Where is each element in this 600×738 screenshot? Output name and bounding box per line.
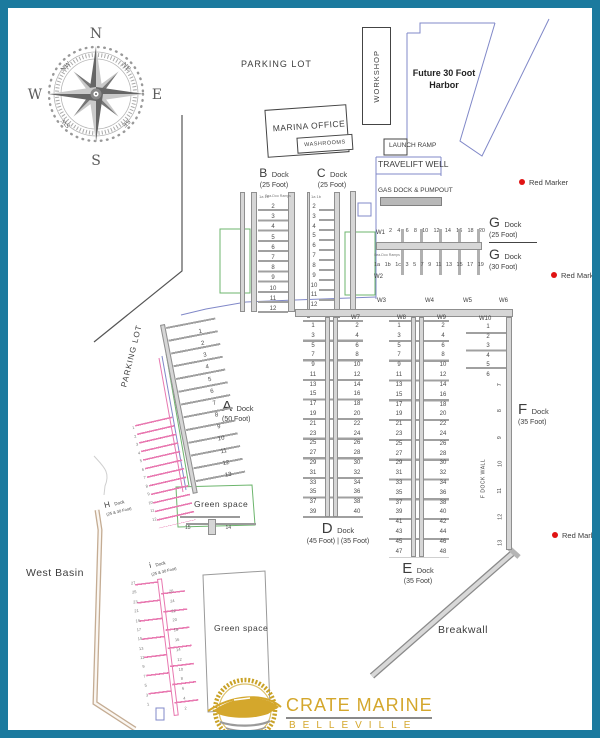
- a-dock-end-stub: [208, 519, 216, 535]
- west-wall: [95, 510, 135, 729]
- f-dock-slips-top: 123456: [480, 324, 496, 378]
- walkway-w10-label: W10: [479, 316, 491, 322]
- c-dock-outer-rail: [350, 191, 356, 313]
- compass-w: W: [28, 87, 43, 103]
- workshop-label: WORKSHOP: [372, 50, 381, 103]
- g-dock-divider: [489, 242, 537, 243]
- launch-ramp-label: LAUNCH RAMP: [389, 143, 436, 150]
- marina-map: N E S W NE SE SW NW PARKING LOT WORKSHOP…: [0, 0, 600, 738]
- green-space-2-outline: [203, 571, 270, 712]
- g-dock-letter-25: G: [489, 214, 500, 230]
- logo-divider: [286, 717, 432, 719]
- f-dock-header: F Dock (35 Foot): [518, 401, 562, 427]
- west-basin-label: West Basin: [26, 568, 84, 579]
- g-dock-rail: [376, 242, 482, 250]
- workshop-building: WORKSHOP: [362, 27, 391, 125]
- e-dock-size: (35 Foot): [390, 578, 446, 586]
- g-dock-south-slips: 1a1b1c35791113151719: [374, 263, 484, 269]
- c-dock-ramp-slips: 1a 1b: [311, 195, 321, 199]
- gas-dock-label: GAS DOCK & PUMPOUT: [378, 188, 453, 195]
- breakwall-label: Breakwall: [438, 625, 488, 636]
- e-dock-slips-left: 1357911131517192123252729313335373941434…: [390, 323, 408, 555]
- logo-subtitle: BELLEVILLE: [289, 720, 417, 731]
- c-dock-slip-numbers: 2345678910111213: [308, 204, 320, 318]
- g-dock-size-25: (25 Foot): [489, 232, 537, 240]
- f-dock-letter: F: [518, 401, 527, 418]
- walkway-w5-label: W5: [463, 298, 472, 304]
- sea-doo-ramps-label-g: Sea-Doo Ramps: [374, 254, 400, 258]
- e-dock-spine-left: [411, 317, 416, 557]
- d-dock-slips-left: 13579111315171921232527293133353739: [304, 323, 322, 515]
- walkway-w3-label: W3: [377, 298, 386, 304]
- e-dock-slips-right: 2468101214161820222426283032343638404244…: [434, 323, 452, 555]
- d-dock-spine-right: [333, 317, 338, 517]
- c-dock-fingers: [319, 201, 334, 319]
- sea-doo-ramps-label-bc: Sea-Doo Ramps: [265, 195, 291, 199]
- d-dock-header: D Dock (45 Foot) | (35 Foot): [303, 520, 373, 546]
- parking-lot-top-label: PARKING LOT: [241, 60, 312, 69]
- logo-wave-2: [226, 727, 266, 731]
- f-dock-wall-label: F DOCK WALL: [482, 449, 487, 509]
- d-dock-letter: D: [322, 520, 333, 537]
- c-dock-letter: C: [317, 166, 326, 180]
- b-dock-outer-rail: [240, 192, 245, 312]
- walkway-w6-label: W6: [499, 298, 508, 304]
- e-dock-spine-right: [419, 317, 424, 557]
- compass-n: N: [90, 26, 102, 42]
- d-dock-size: (45 Foot) | (35 Foot): [303, 538, 373, 546]
- red-marker-label-2: Red Marker: [561, 271, 600, 280]
- red-marker-label-1: Red Marker: [529, 178, 568, 187]
- green-space-1-label: Green space: [194, 500, 248, 509]
- red-marker-label-3: Red Marker: [562, 531, 600, 540]
- h-dock-letter: H: [103, 500, 111, 510]
- e-dock-header: E Dock (35 Foot): [390, 560, 446, 586]
- c-dock-header: C Dock (25 Foot): [306, 164, 358, 190]
- b-dock-slip-numbers: 23456789101112: [260, 204, 286, 312]
- walkway-w2-label: W2: [374, 274, 383, 280]
- logo-title: CRATE MARINE: [286, 695, 433, 716]
- c-dock-size: (25 Foot): [306, 182, 358, 190]
- green-space-2-label: Green space: [214, 624, 268, 633]
- future-harbor-label: Future 30 Foot Harbor: [404, 68, 484, 91]
- b-dock-header: B Dock (25 Foot): [248, 164, 300, 190]
- f-dock-size: (35 Foot): [518, 419, 562, 427]
- compass-e: E: [152, 87, 162, 103]
- red-marker-dot-3: [552, 532, 558, 538]
- c-dock-right-rail: [334, 192, 340, 318]
- e-dock-letter: E: [402, 560, 412, 577]
- b-dock-right-rail: [288, 192, 295, 312]
- b-dock-left-rail: [251, 192, 257, 312]
- washrooms-label: WASHROOMS: [304, 139, 346, 148]
- b-dock-size: (25 Foot): [248, 182, 300, 190]
- g-dock-headers: G Dock (25 Foot) G Dock (30 Foot): [489, 214, 537, 272]
- shoreline-top-left: [94, 115, 182, 342]
- b-dock-letter: B: [259, 166, 267, 180]
- d-dock-slips-right: 246810121416182022242628303234363840: [348, 323, 366, 515]
- washrooms-building: WASHROOMS: [296, 134, 353, 154]
- g-dock-letter-30: G: [489, 246, 500, 262]
- marina-office-label: MARINA OFFICE: [272, 119, 345, 133]
- marina-office-building: MARINA OFFICE WASHROOMS: [264, 104, 349, 158]
- logo-wave-1: [220, 721, 270, 726]
- walkway-w1-label: W1: [376, 230, 385, 236]
- compass-rose: N E S W NE SE SW NW: [28, 26, 162, 169]
- red-marker-dot-2: [551, 272, 557, 278]
- travelift-well-label: TRAVELIFT WELL: [378, 160, 449, 169]
- compass-s: S: [91, 153, 101, 169]
- red-marker-dot-1: [519, 179, 525, 185]
- d-dock-spine-left: [325, 317, 330, 517]
- walkway-w4-label: W4: [425, 298, 434, 304]
- gas-dock-bar: [380, 197, 442, 206]
- shoreline-west: [94, 456, 107, 495]
- g-dock-size-30: (30 Foot): [489, 264, 537, 272]
- logo-graphic: [208, 680, 281, 738]
- f-dock-slips-side: 78910111213: [495, 382, 507, 546]
